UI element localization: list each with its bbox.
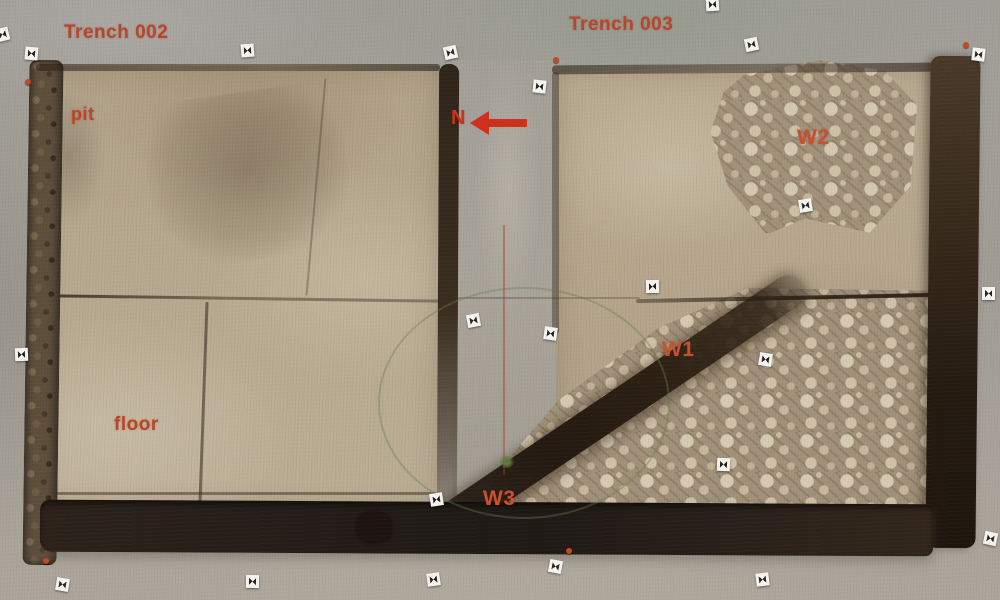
photogrammetry-target [429, 492, 444, 507]
photogrammetry-target [241, 44, 255, 58]
photogrammetry-target [426, 572, 441, 587]
north-arrow-shaft [487, 119, 527, 127]
photogrammetry-target [758, 352, 773, 367]
label-w3: W3 [483, 487, 516, 511]
survey-nail [963, 42, 969, 48]
label-w2: W2 [797, 126, 830, 150]
photogrammetry-target [443, 45, 459, 61]
photogrammetry-target [983, 531, 998, 546]
photogrammetry-target [755, 572, 769, 586]
label-w1: W1 [662, 338, 695, 362]
label-floor: floor [114, 414, 159, 436]
photogrammetry-target [15, 348, 28, 361]
photogrammetry-target [646, 280, 659, 293]
survey-nail [566, 548, 572, 554]
photogrammetry-target [744, 37, 759, 52]
north-label: N [451, 107, 466, 130]
photogrammetry-target [466, 313, 481, 328]
photogrammetry-target [982, 287, 995, 300]
label-pit: pit [71, 104, 95, 125]
photogrammetry-target [548, 559, 563, 574]
survey-nail [43, 558, 49, 564]
photogrammetry-target [971, 47, 985, 61]
photogrammetry-target [24, 46, 38, 60]
excavation-orthophoto: Trench 002 Trench 003 pit W2 W1 W3 floor… [0, 0, 1000, 600]
photogrammetry-target [798, 198, 813, 213]
photogrammetry-target [55, 577, 70, 592]
label-trench-002: Trench 002 [64, 22, 168, 44]
photogrammetry-target [532, 79, 546, 93]
photogrammetry-target [717, 458, 730, 471]
photogrammetry-target [0, 27, 10, 43]
label-trench-003: Trench 003 [569, 14, 673, 36]
photogrammetry-target [543, 326, 558, 341]
survey-nail [553, 57, 559, 63]
photogrammetry-target [246, 575, 259, 588]
survey-nail [25, 79, 31, 85]
photogrammetry-target [706, 0, 720, 11]
